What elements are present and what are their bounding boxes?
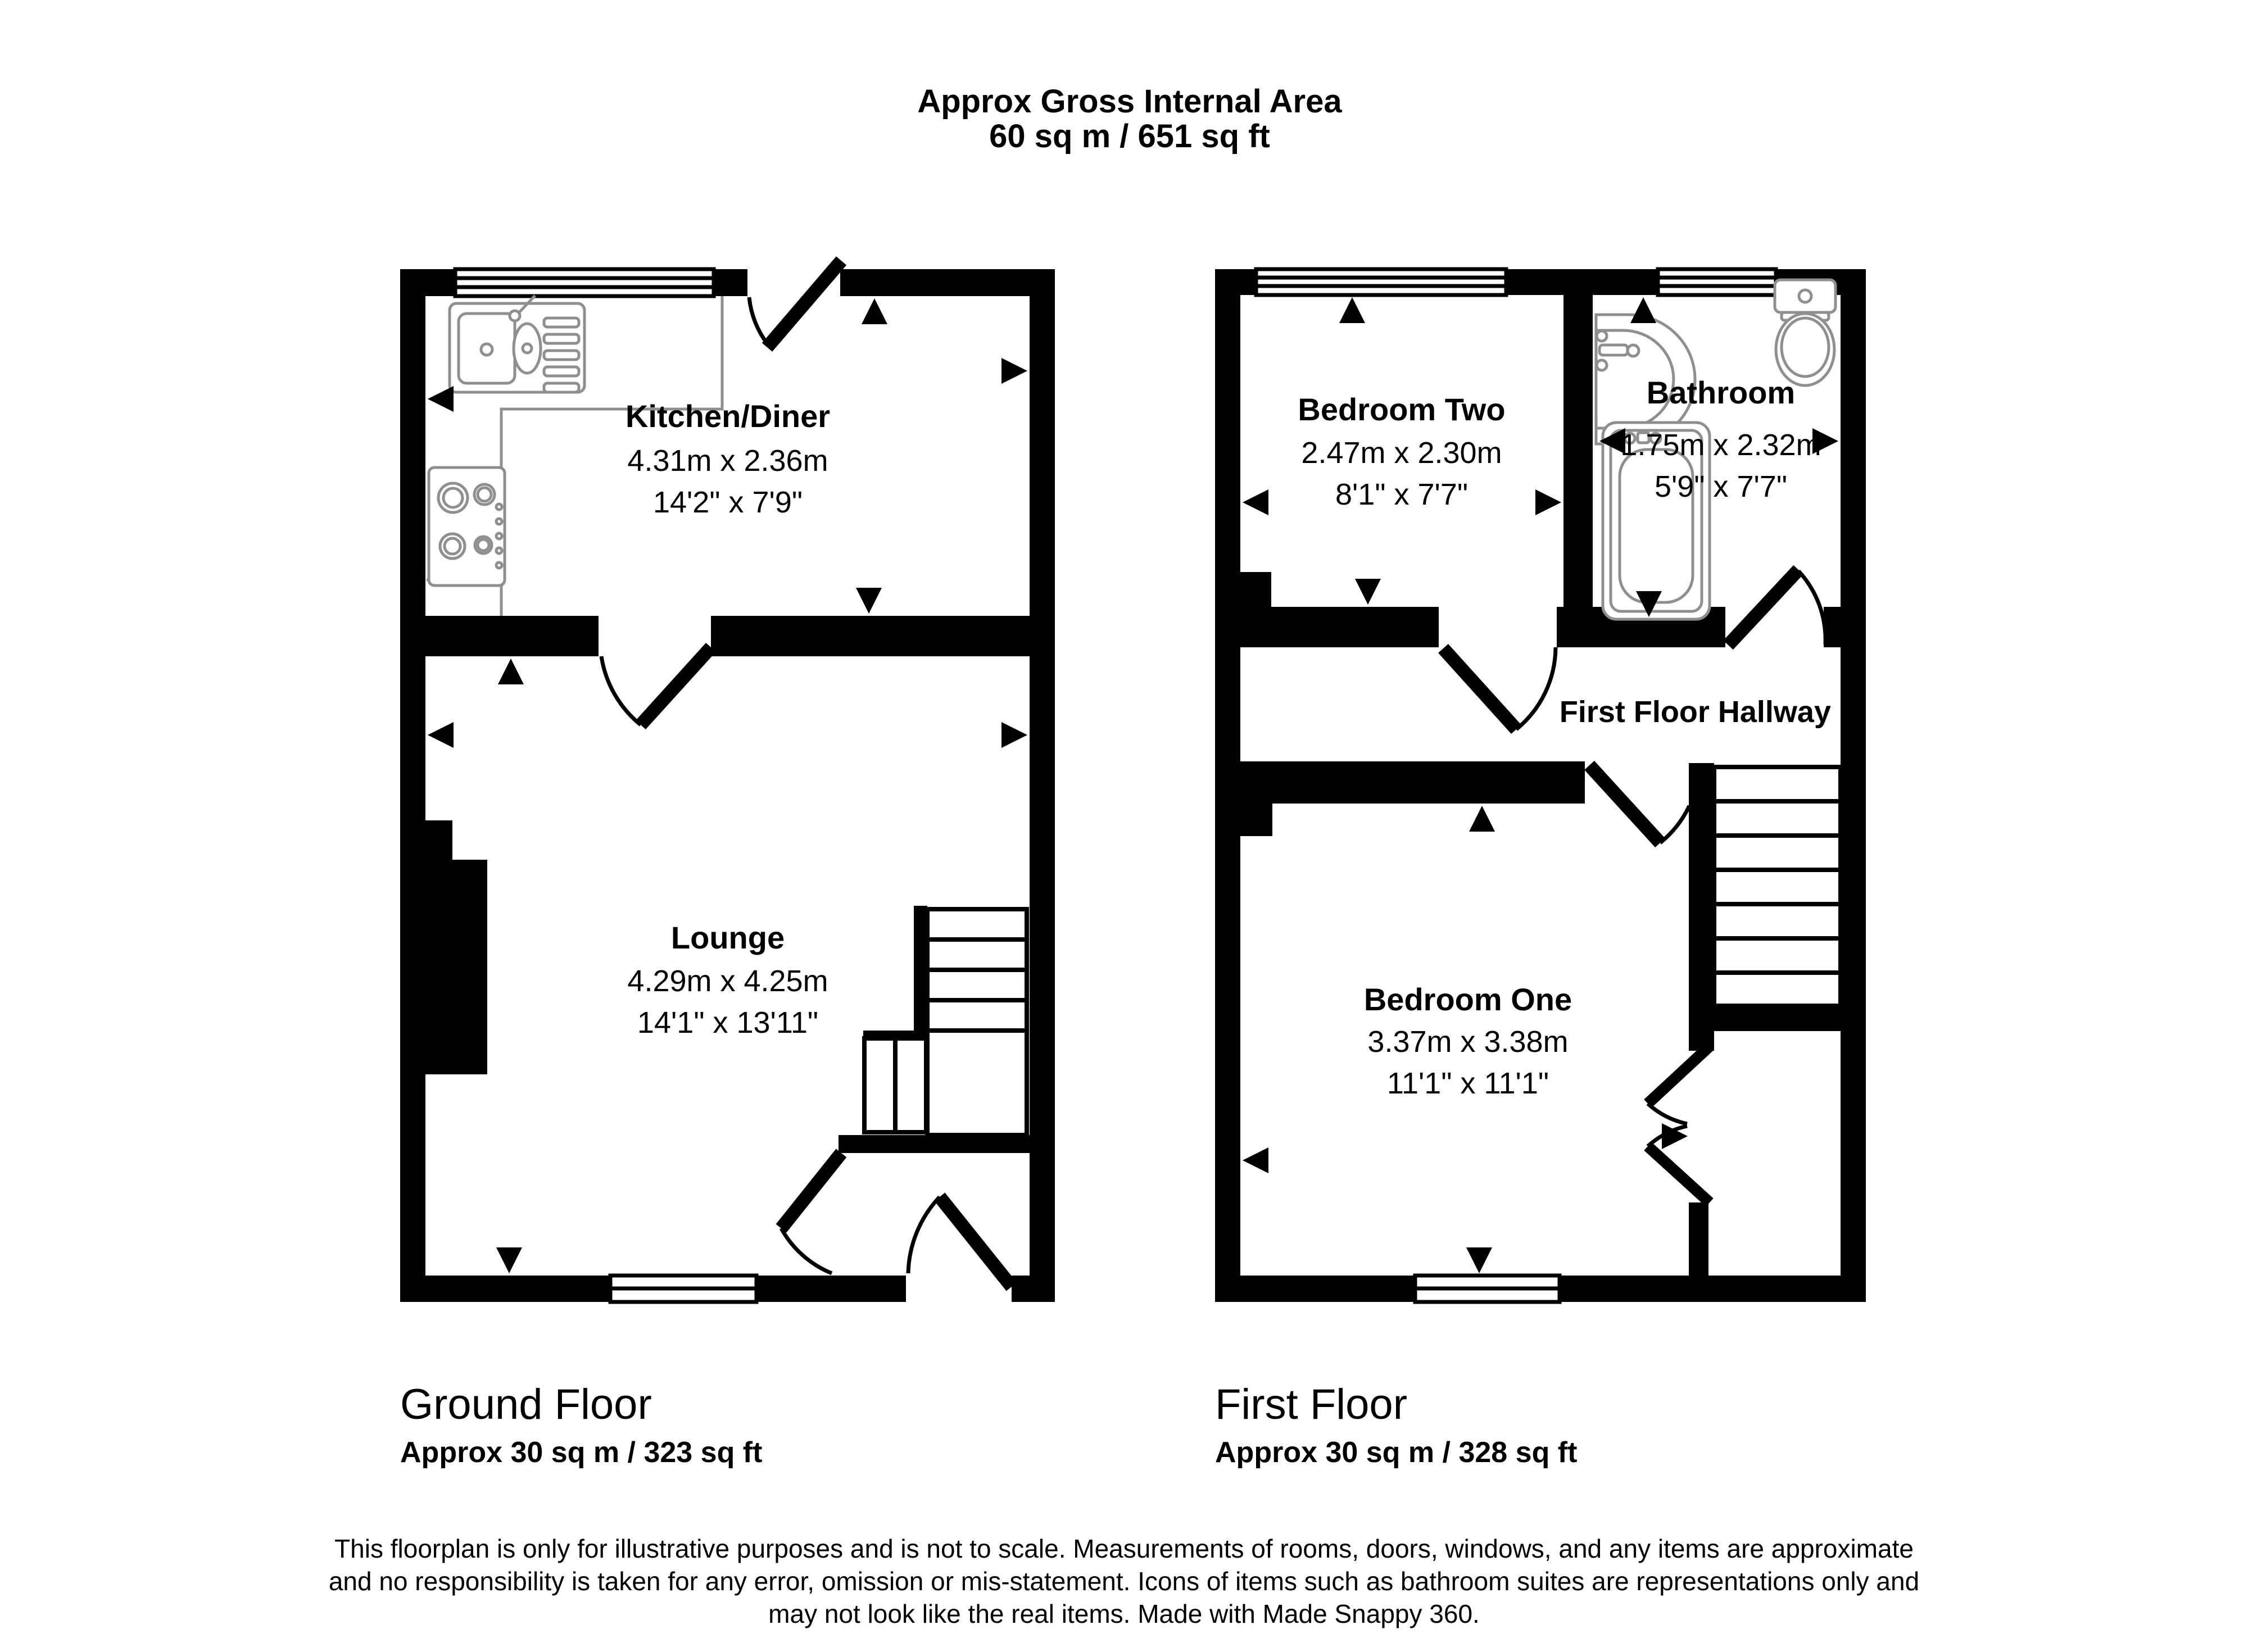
room-imperial: 8'1" x 7'7" <box>1335 478 1468 511</box>
room-name: Bedroom One <box>1364 982 1572 1017</box>
hob-icon <box>429 468 505 586</box>
canvas-background <box>0 0 2248 1652</box>
room-metric: 4.29m x 4.25m <box>627 964 828 998</box>
room-name: First Floor Hallway <box>1560 695 1831 729</box>
first-floor-caption: First Floor <box>1215 1381 1407 1428</box>
chimney-breast <box>425 860 487 1074</box>
hallway-label: First Floor Hallway <box>1560 695 1831 729</box>
ground-floor-area: Approx 30 sq m / 323 sq ft <box>400 1436 762 1469</box>
ground-floor-caption: Ground Floor <box>400 1381 652 1428</box>
toilet-icon <box>1775 280 1835 385</box>
page-total-area: 60 sq m / 651 sq ft <box>989 118 1270 155</box>
page-title: Approx Gross Internal Area <box>917 83 1342 120</box>
room-metric: 4.31m x 2.36m <box>627 444 828 478</box>
disclaimer-line-1: This floorplan is only for illustrative … <box>334 1534 1914 1563</box>
bathroom-window <box>1658 269 1776 295</box>
room-imperial: 14'2" x 7'9" <box>653 485 803 519</box>
room-name: Bathroom <box>1647 375 1795 410</box>
room-name: Lounge <box>671 920 785 955</box>
room-imperial: 14'1" x 13'11" <box>637 1006 818 1040</box>
room-imperial: 5'9" x 7'7" <box>1655 470 1787 503</box>
kitchen-diner-label: Kitchen/Diner 4.31m x 2.36m 14'2" x 7'9" <box>626 398 830 519</box>
bedroom-one-label: Bedroom One 3.37m x 3.38m 11'1" x 11'1" <box>1364 982 1572 1100</box>
chimney-breast <box>425 820 452 860</box>
room-metric: 2.47m x 2.30m <box>1301 436 1502 470</box>
floorplan-page: Approx Gross Internal Area 60 sq m / 651… <box>0 0 2248 1652</box>
room-imperial: 11'1" x 11'1" <box>1387 1066 1549 1100</box>
room-name: Bedroom Two <box>1298 392 1505 427</box>
disclaimer-line-2: and no responsibility is taken for any e… <box>329 1567 1919 1596</box>
room-name: Kitchen/Diner <box>626 398 830 434</box>
room-metric: 1.75m x 2.32m <box>1620 428 1821 462</box>
first-floor-stairs <box>1714 767 1841 1006</box>
bedroom-two-window <box>1256 269 1506 295</box>
first-floor-area: Approx 30 sq m / 328 sq ft <box>1215 1436 1577 1469</box>
kitchen-sink-icon <box>450 296 584 392</box>
room-metric: 3.37m x 3.38m <box>1367 1025 1568 1059</box>
disclaimer-line-3: may not look like the real items. Made w… <box>768 1599 1480 1628</box>
kitchen-window <box>455 269 714 296</box>
floorplan-drawing: Approx Gross Internal Area 60 sq m / 651… <box>0 0 2248 1652</box>
lounge-window <box>610 1276 756 1302</box>
bedroom-one-window <box>1415 1276 1560 1302</box>
